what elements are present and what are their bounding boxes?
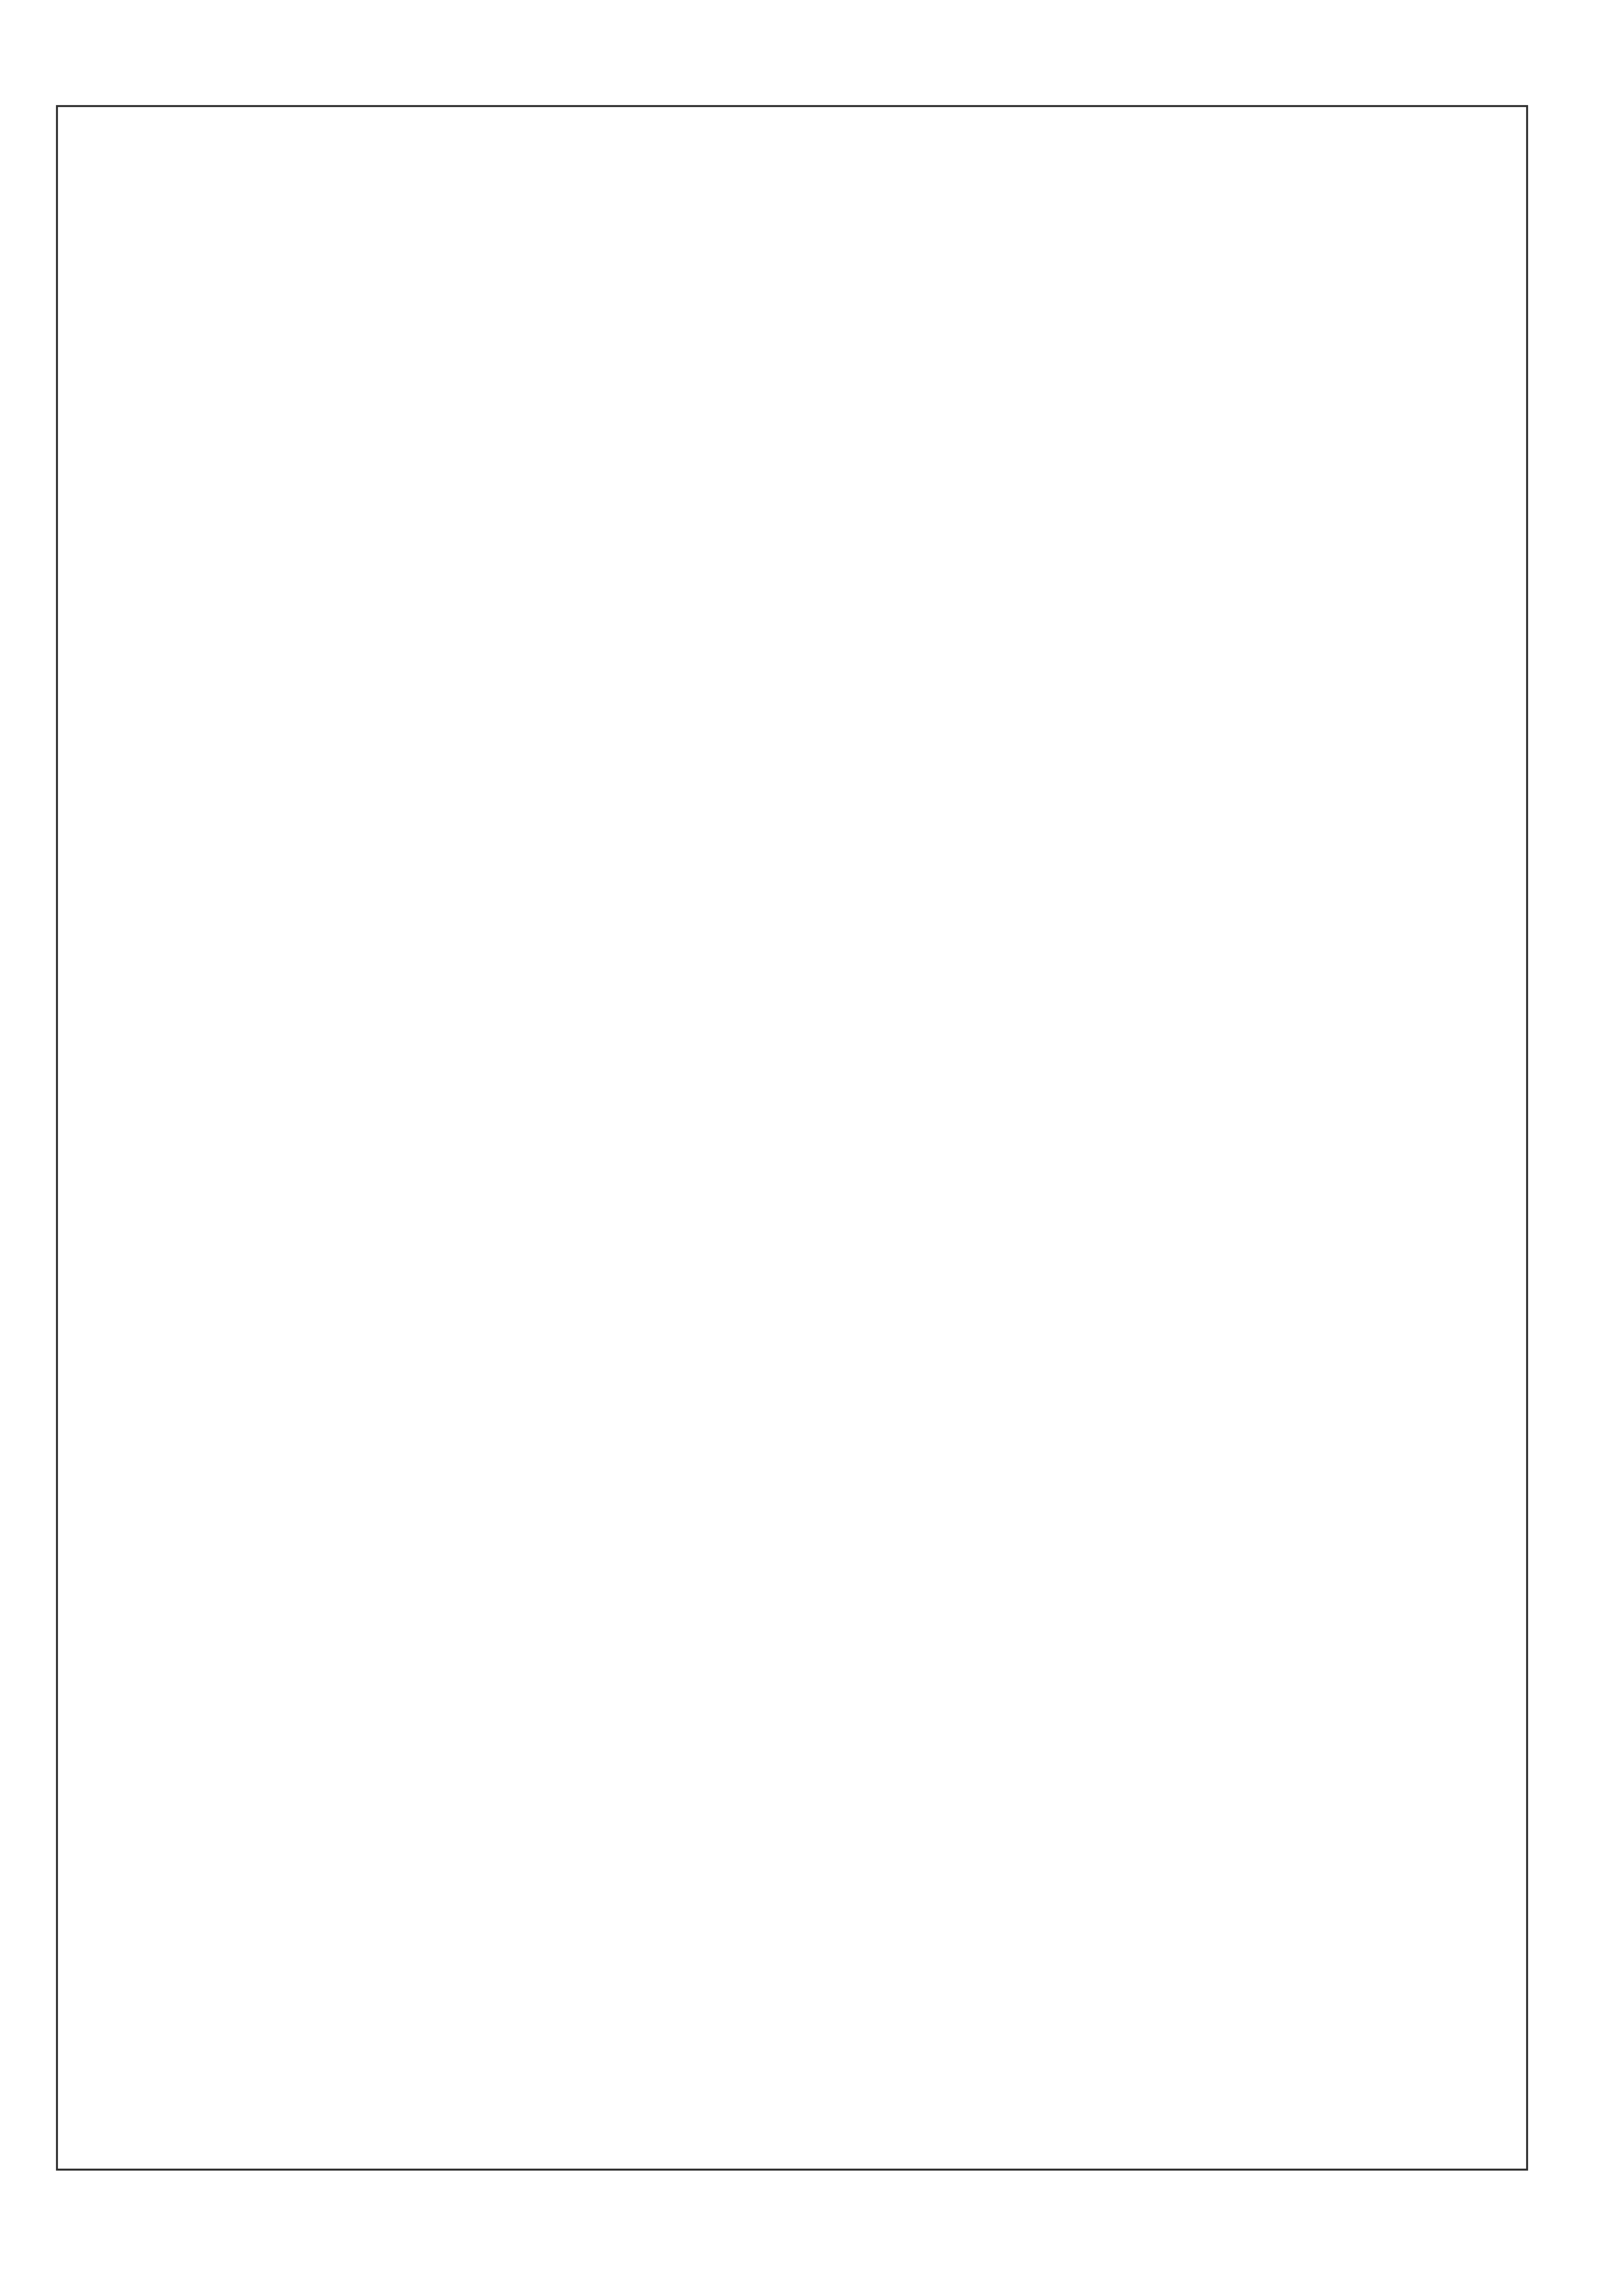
map-canvas xyxy=(0,0,1624,2296)
page-background xyxy=(0,0,1624,2296)
